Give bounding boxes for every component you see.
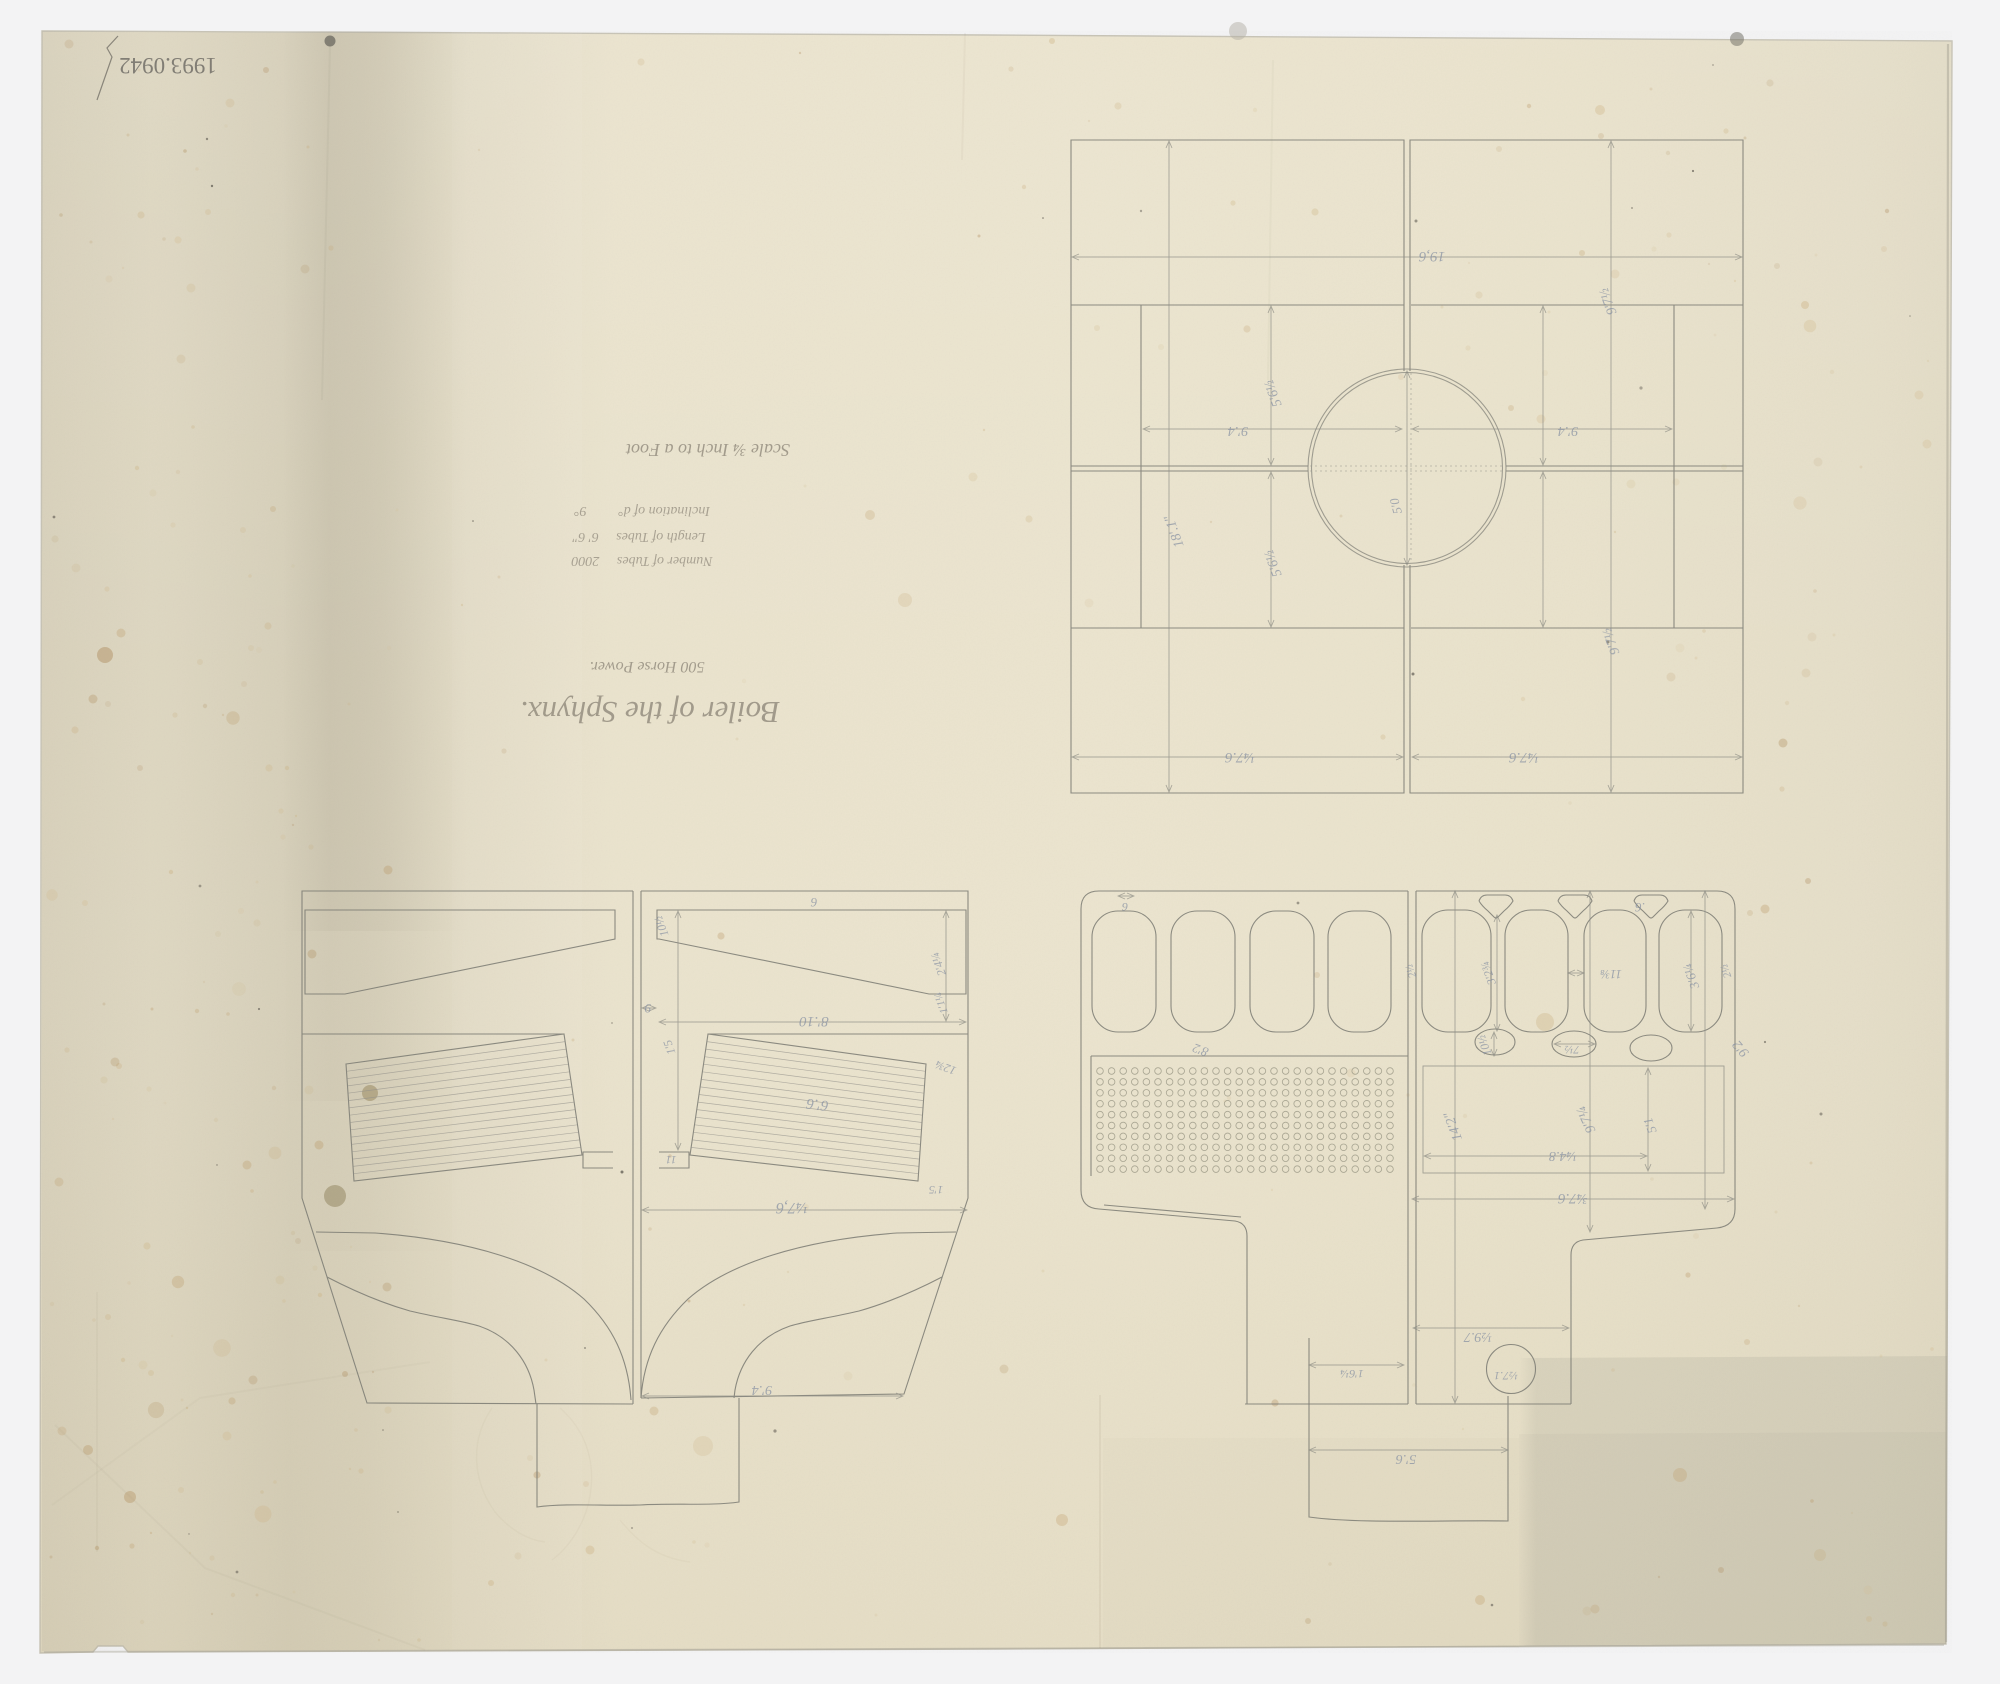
svg-text:Length of Tubes 6' 6": Length of Tubes 6' 6": [572, 529, 706, 544]
svg-text:¾7.6: ¾7.6: [1558, 1190, 1589, 1206]
svg-text:¼7,6: ¼7,6: [776, 1199, 808, 1216]
svg-text:Scale ¾ Inch to a Foot: Scale ¾ Inch to a Foot: [625, 440, 790, 460]
svg-text:1'5: 1'5: [929, 1183, 944, 1197]
svg-text:7½: 7½: [1565, 1043, 1580, 1057]
svg-text:¼4.8: ¼4.8: [1549, 1148, 1577, 1163]
svg-text:6'.6: 6'.6: [805, 1095, 829, 1114]
svg-text:Number of Tubes 2000: Number of Tubes 2000: [571, 553, 713, 568]
svg-text:9'.4: 9'.4: [752, 1382, 773, 1397]
svg-text:11: 11: [665, 1153, 676, 1167]
svg-text:Inclination of d° 9°: Inclination of d° 9°: [574, 503, 711, 518]
svg-text:9'.4: 9'.4: [1558, 423, 1579, 438]
svg-text:.6: .6: [1635, 900, 1645, 915]
svg-text:¼7.6: ¼7.6: [1225, 749, 1256, 765]
svg-text:9'.4: 9'.4: [1228, 423, 1249, 438]
svg-text:8'.10: 8'.10: [799, 1013, 829, 1029]
svg-text:½9.7: ½9.7: [1463, 1329, 1492, 1344]
svg-text:¼7.6: ¼7.6: [1509, 749, 1540, 765]
svg-text:5'.6: 5'.6: [1396, 1451, 1417, 1466]
svg-text:½7.1: ½7.1: [1494, 1369, 1518, 1383]
svg-text:500 Horse Power.: 500 Horse Power.: [589, 658, 704, 675]
svg-text:1993.0942: 1993.0942: [119, 53, 217, 78]
svg-text:1'6¼: 1'6¼: [1340, 1367, 1364, 1381]
svg-text:9: 9: [644, 1001, 651, 1016]
svg-text:Boiler of the Sphynx.: Boiler of the Sphynx.: [520, 695, 780, 730]
svg-text:6: 6: [810, 895, 817, 910]
svg-text:6: 6: [1122, 900, 1128, 914]
svg-text:19,6: 19,6: [1418, 248, 1445, 264]
svg-text:11⅜: 11⅜: [1600, 967, 1622, 982]
